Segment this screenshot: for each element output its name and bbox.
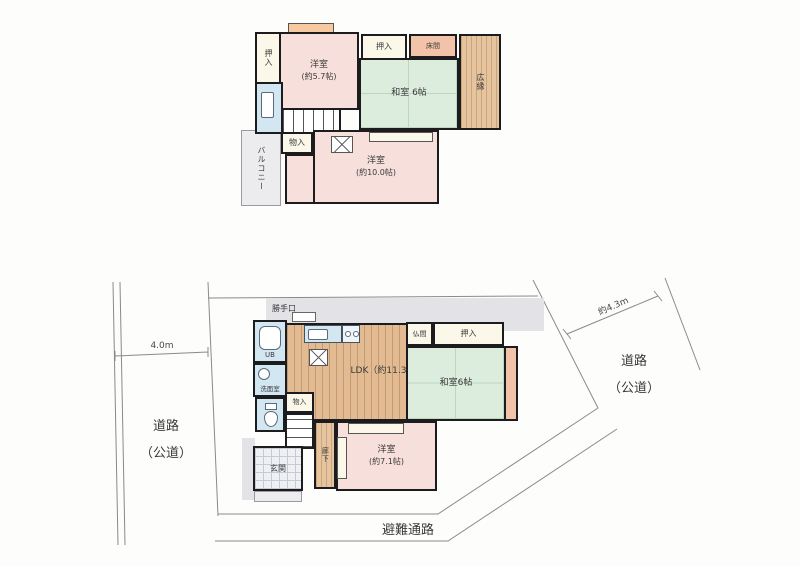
room-1f-hallway: 廊下 — [314, 421, 336, 489]
room-1f-entrance: 玄関 — [253, 446, 303, 491]
entrance-label: 玄関 — [255, 448, 301, 489]
left-road-outer-line-2 — [120, 282, 125, 545]
veranda-label: 広縁 — [461, 36, 499, 128]
balcony-label: バルコニー — [242, 131, 280, 205]
room-2f-storage: 物入 — [281, 132, 313, 154]
burner-icon — [345, 331, 351, 337]
road-type: （公道） — [594, 377, 674, 396]
closet-label: 押入 — [257, 34, 279, 82]
stove-unit — [342, 325, 360, 343]
bathtub-icon — [259, 326, 281, 350]
dimension-left: 4.0m — [132, 341, 192, 351]
evacuation-text: 避難通路 — [382, 523, 434, 538]
room-name: 洋室 — [310, 60, 328, 71]
evacuation-passage-label: 避難通路 — [358, 519, 458, 538]
room-name: 和室6帖 — [408, 348, 504, 419]
road-right-label: 道路 （公道） — [594, 350, 674, 396]
balcony: バルコニー — [241, 130, 281, 206]
underfloor-storage-icon — [309, 349, 328, 366]
room-2f-veranda-hiroen: 広縁 — [459, 34, 501, 130]
room-1f-butsuma: 仏間 — [406, 322, 433, 346]
washroom-label: 洗面室 — [255, 384, 285, 394]
washstand-icon — [261, 92, 274, 118]
room-2f-japanese-6: 和室 6帖 — [359, 58, 459, 130]
road-name: 道路 — [126, 415, 206, 434]
room-name: 洋室 — [367, 156, 385, 167]
staircase-1f — [285, 413, 314, 449]
toilet-bowl-icon — [264, 411, 278, 427]
room-size: (約5.7帖) — [302, 72, 337, 82]
room-1f-storage: 物入 — [285, 392, 314, 413]
room-1f-washroom: 洗面室 — [253, 363, 287, 397]
room-2f-western-5-7: 洋室 (約5.7帖) — [279, 32, 359, 110]
room-size: (約10.0帖) — [356, 168, 396, 178]
room-1f-engawa-strip — [504, 346, 518, 421]
back-door-step — [292, 312, 316, 322]
shelf-box-1f-v — [337, 437, 347, 479]
shelf-box-1f-h — [348, 423, 404, 434]
road-left-label: 道路 （公道） — [126, 415, 206, 461]
toilet-tank-icon — [265, 403, 277, 410]
room-2f-wash — [255, 82, 283, 134]
room-2f-tokonoma: 床間 — [409, 34, 457, 58]
shelf-box-2f — [369, 132, 433, 142]
tokonoma-label: 床間 — [411, 36, 455, 56]
left-road-inner-boundary — [208, 282, 218, 516]
floor-plan-canvas: バルコニー 押入 洋室 (約5.7帖) 押入 床間 和室 6帖 広縁 物入 洋室… — [0, 0, 800, 566]
unit-bath-label: UB — [255, 350, 285, 360]
room-2f-closet-top: 押入 — [361, 34, 407, 60]
butsuma-label: 仏間 — [408, 324, 431, 344]
entrance-porch-step — [254, 491, 302, 502]
road-type: （公道） — [126, 442, 206, 461]
closet-label: 押入 — [363, 36, 405, 58]
room-1f-toilet — [255, 397, 285, 432]
room-2f-closet-left: 押入 — [255, 32, 281, 84]
room-name: 洋室 — [377, 445, 395, 456]
room-size: (約7.1帖) — [369, 457, 404, 467]
kitchen-sink-icon — [308, 329, 328, 340]
skylight-hatch-icon — [331, 136, 353, 153]
closet-label: 押入 — [435, 324, 502, 344]
room-1f-unit-bath: UB — [253, 320, 287, 363]
hallway-label: 廊下 — [316, 423, 334, 487]
room-name: 和室 6帖 — [361, 60, 457, 128]
storage-label: 物入 — [287, 394, 312, 411]
burner-icon — [353, 331, 359, 337]
room-1f-closet: 押入 — [433, 322, 504, 346]
kitchen-counter — [304, 325, 342, 343]
washbasin-icon — [258, 368, 270, 380]
storage-label: 物入 — [283, 134, 311, 152]
left-road-outer-line-1 — [113, 282, 118, 545]
dimension-left-value: 4.0m — [150, 341, 173, 351]
room-1f-japanese-6: 和室6帖 — [406, 346, 506, 421]
road-name: 道路 — [594, 350, 674, 369]
